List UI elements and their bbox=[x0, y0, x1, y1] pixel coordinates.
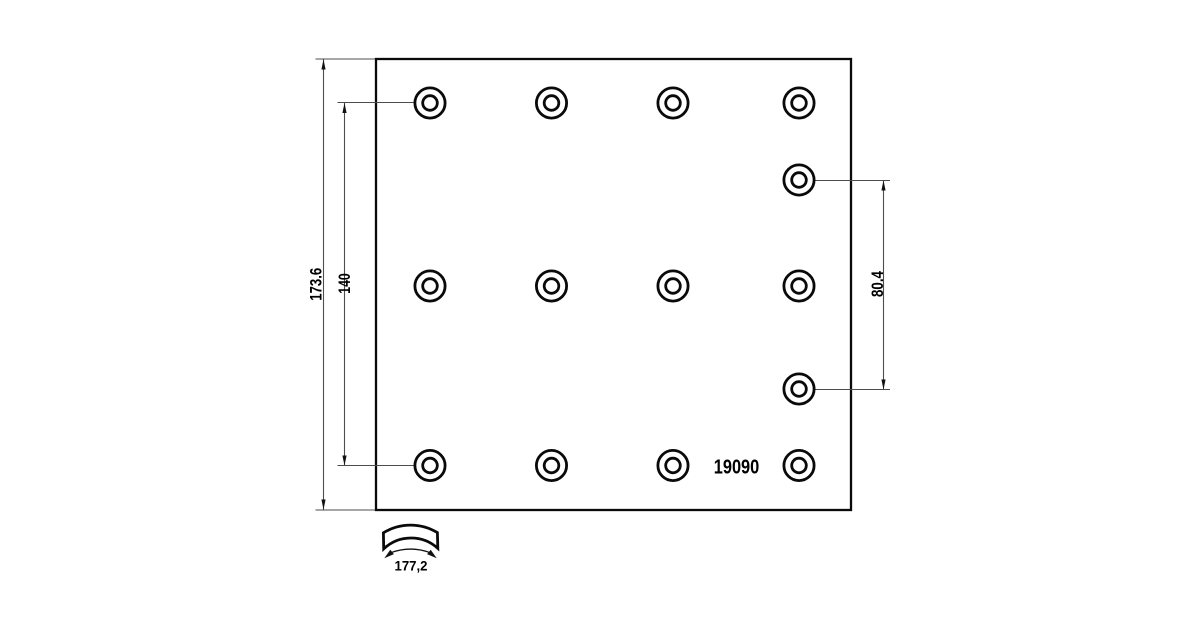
svg-text:177,2: 177,2 bbox=[395, 558, 428, 574]
svg-text:173.6: 173.6 bbox=[308, 268, 326, 301]
svg-text:80.4: 80.4 bbox=[869, 271, 887, 297]
svg-text:140: 140 bbox=[336, 273, 354, 294]
svg-text:19090: 19090 bbox=[714, 457, 760, 479]
